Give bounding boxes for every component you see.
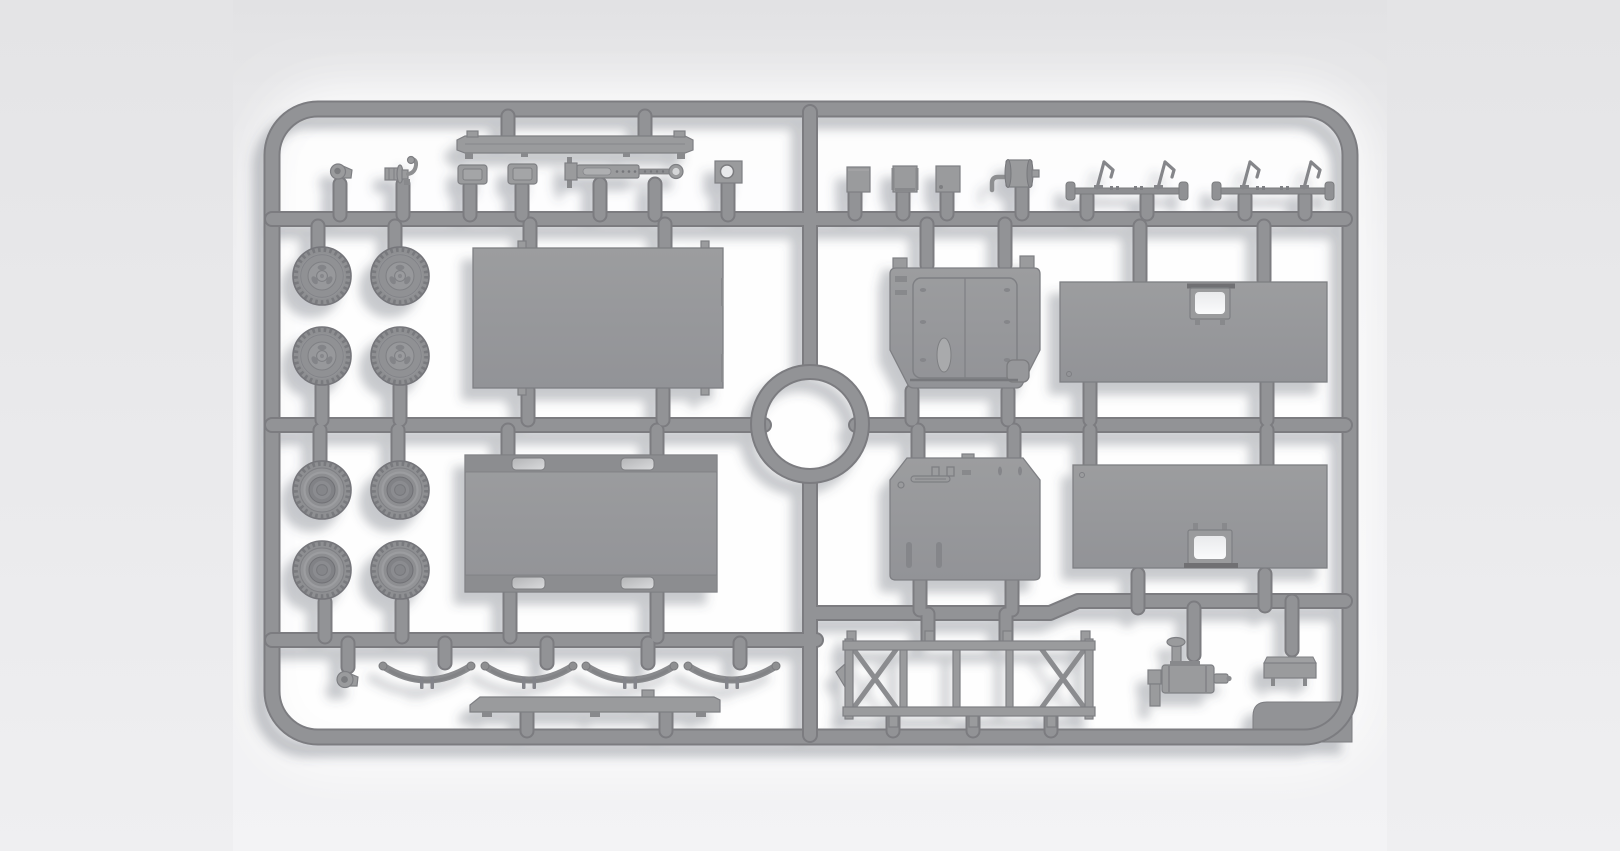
stowage-box-1 — [847, 167, 870, 192]
bracket-plate-with-hole — [715, 161, 742, 183]
stowage-box-3 — [936, 166, 960, 192]
page: { "scene": { "type": "product-photo", "s… — [0, 0, 1620, 851]
road-wheel-inner-1 — [293, 461, 351, 519]
leaf-spring-2 — [481, 662, 577, 689]
leaf-spring-3 — [582, 662, 678, 689]
road-wheel-inner-4 — [371, 541, 429, 599]
road-wheel-inner-2 — [371, 461, 429, 519]
flat-roof-panel — [473, 241, 724, 395]
stowage-box-2 — [892, 166, 919, 192]
hatch-plate-1 — [458, 165, 487, 184]
shackle-eyelet-bottom — [337, 672, 358, 688]
road-wheel-outer-3 — [293, 327, 351, 385]
road-wheel-outer-4 — [371, 327, 429, 385]
leaf-spring-4 — [684, 662, 780, 689]
towing-hook — [385, 157, 416, 186]
front-bumper-bar — [457, 131, 693, 159]
sprue — [272, 109, 1352, 742]
road-wheel-inner-3 — [293, 541, 351, 599]
cab-back-panel — [890, 454, 1040, 580]
hatch-plate-2 — [508, 164, 537, 184]
road-wheel-outer-1 — [293, 247, 351, 305]
center-ring-hub — [758, 372, 862, 476]
body-side-panel-upper — [1060, 282, 1327, 382]
winch-drum — [992, 160, 1039, 191]
axle-with-levers-2 — [1212, 162, 1334, 200]
ladder-chassis-frame — [836, 631, 1095, 727]
body-side-panel-lower — [1073, 465, 1327, 568]
road-wheel-outer-2 — [371, 247, 429, 305]
rear-bumper-bar — [470, 690, 720, 717]
cab-hood-panel — [890, 256, 1040, 388]
axle-with-levers-1 — [1066, 162, 1188, 200]
seat-bench — [1264, 657, 1316, 686]
steering-damper-cylinder — [565, 157, 683, 188]
shackle-eyelet-top — [331, 164, 353, 179]
floor-panel-with-hatches — [465, 455, 717, 592]
leaf-spring-1 — [379, 662, 475, 689]
sprue-illustration — [0, 0, 1620, 851]
